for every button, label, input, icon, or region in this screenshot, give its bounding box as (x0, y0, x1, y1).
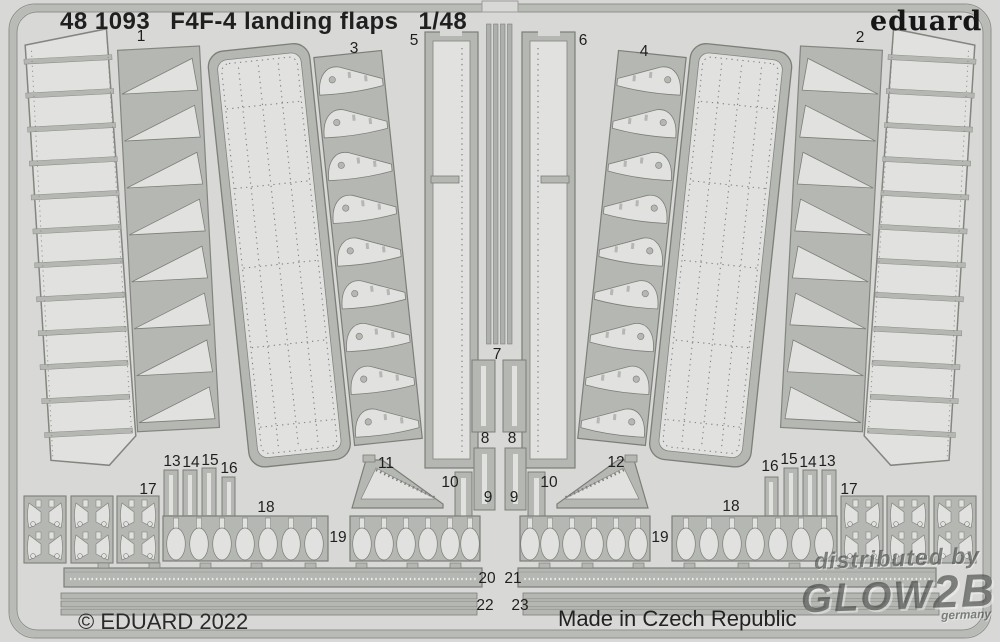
part-label-15: 15 (201, 452, 218, 470)
part-label-8: 8 (481, 430, 490, 448)
copyright-text: © EDUARD 2022 (78, 609, 248, 635)
sheet-header: 48 1093 F4F-4 landing flaps 1/48 (60, 8, 467, 36)
part-label-1: 1 (137, 28, 146, 46)
parts-17-plates-right (841, 496, 976, 563)
part-5-strip (425, 30, 478, 468)
part-19-plate-right (520, 516, 650, 561)
part-label-9: 9 (484, 489, 493, 507)
part-label-8: 8 (508, 430, 517, 448)
sheet-scale: 1/48 (418, 8, 467, 36)
part-4-flap-panel (576, 35, 793, 469)
sheet-title: F4F-4 landing flaps (170, 8, 398, 36)
part-label-18: 18 (722, 498, 739, 516)
part-label-20: 20 (478, 570, 495, 588)
part-2-wing-flap-skin (779, 24, 978, 469)
part-1-wing-flap-skin (23, 24, 222, 469)
part-7-strips (487, 24, 513, 344)
part-label-13: 13 (818, 453, 835, 471)
part-label-23: 23 (511, 597, 528, 615)
part-label-16: 16 (220, 460, 237, 478)
part-label-4: 4 (640, 43, 649, 61)
parts-17-plates (24, 496, 159, 563)
part-label-10: 10 (441, 474, 458, 492)
part-20-strip (64, 563, 482, 587)
eduard-logo: eduard (870, 6, 982, 37)
part-label-22: 22 (476, 597, 493, 615)
part-label-7: 7 (493, 346, 502, 364)
frame-top-tab (482, 1, 518, 12)
part-18-plate-right (672, 516, 837, 561)
part-label-10: 10 (540, 474, 557, 492)
made-in-text: Made in Czech Republic (558, 606, 796, 632)
part-label-19: 19 (651, 529, 668, 547)
fret-artwork (0, 0, 1000, 642)
part-label-18: 18 (257, 499, 274, 517)
part-label-2: 2 (856, 29, 865, 47)
part-label-16: 16 (761, 458, 778, 476)
part-6-strip (522, 30, 575, 468)
part-label-14: 14 (182, 454, 199, 472)
part-label-17: 17 (139, 481, 156, 499)
photo-etch-sheet-scan: 48 1093 F4F-4 landing flaps 1/48 eduard … (0, 0, 1000, 642)
part-label-5: 5 (410, 32, 419, 50)
part-label-9: 9 (510, 489, 519, 507)
part-19-plate (350, 516, 480, 561)
part-21-strip (518, 563, 936, 587)
part-3-flap-panel (207, 35, 424, 469)
part-18-plate (163, 516, 328, 561)
part-label-21: 21 (504, 570, 521, 588)
part-label-19: 19 (329, 529, 346, 547)
part-label-3: 3 (350, 40, 359, 58)
part-label-14: 14 (799, 454, 816, 472)
part-label-11: 11 (378, 455, 394, 473)
part-label-13: 13 (163, 453, 180, 471)
part-label-15: 15 (780, 451, 797, 469)
part-label-17: 17 (840, 481, 857, 499)
part-label-12: 12 (607, 454, 624, 472)
part-label-6: 6 (579, 32, 588, 50)
